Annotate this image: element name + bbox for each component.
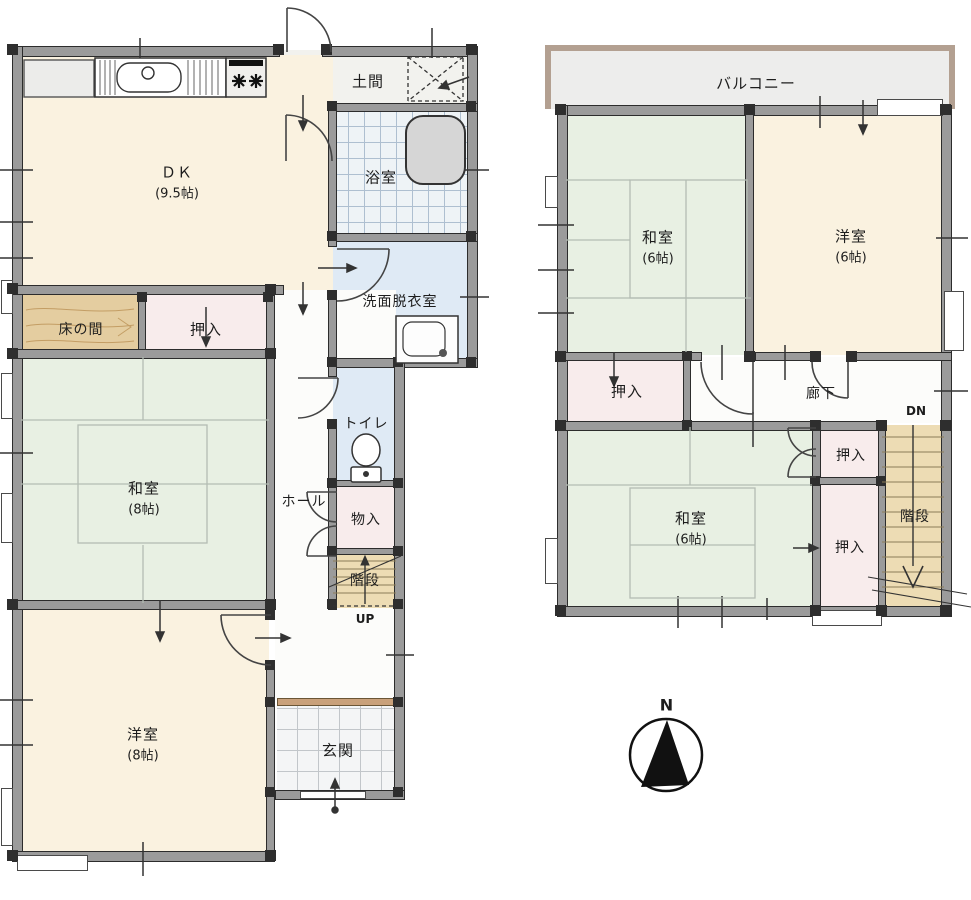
wall <box>328 103 478 112</box>
label-yoshitsu-6: 洋室 (6帖) <box>835 227 867 266</box>
window <box>545 176 558 208</box>
label-oshiire-1f: 押入 <box>190 320 222 340</box>
window <box>1 280 13 314</box>
wall <box>755 352 812 361</box>
floor-plan: 土間 浴室 洗面脱衣室 ＤＫ (9.5帖) 床の間 押入 和室 (8帖) トイレ… <box>0 0 971 900</box>
window <box>1 788 13 846</box>
wall <box>814 477 880 485</box>
wall <box>333 548 396 555</box>
label-genkan: 玄関 <box>322 741 354 761</box>
label-senmen: 洗面脱衣室 <box>363 293 438 311</box>
wall <box>328 420 337 610</box>
wall <box>322 46 478 57</box>
label-dn: DN <box>906 404 926 420</box>
wall <box>394 358 405 800</box>
wall <box>328 103 337 247</box>
window <box>1 373 13 419</box>
window <box>1 493 13 543</box>
wall <box>557 421 882 431</box>
wall <box>12 600 275 610</box>
label-up: UP <box>356 612 375 628</box>
label-tokonoma: 床の間 <box>59 321 104 339</box>
label-washitsu-6n: 和室 (6帖) <box>642 228 674 267</box>
wall <box>12 349 275 359</box>
label-washitsu-8: 和室 (8帖) <box>128 479 160 518</box>
wall <box>557 105 568 617</box>
wall <box>557 606 952 617</box>
wall <box>12 46 23 862</box>
wall <box>12 285 284 295</box>
label-yoshitsu-8: 洋室 (8帖) <box>127 725 159 764</box>
window <box>944 291 964 351</box>
label-north: N <box>660 696 674 717</box>
label-oshiire-e1: 押入 <box>836 447 866 465</box>
window <box>812 610 882 626</box>
wall <box>328 233 478 242</box>
wall <box>467 46 478 368</box>
compass-icon <box>630 719 702 791</box>
wall <box>878 421 886 615</box>
wall <box>266 665 275 862</box>
window <box>17 855 88 871</box>
wall <box>557 352 702 361</box>
window <box>545 538 558 584</box>
label-toilet: トイレ <box>344 415 389 433</box>
wall <box>848 352 952 361</box>
wall <box>333 480 396 487</box>
label-bath: 浴室 <box>365 168 397 188</box>
window <box>877 99 943 116</box>
front-door <box>300 791 366 799</box>
wall <box>745 105 754 361</box>
label-washitsu-6s: 和室 (6帖) <box>675 509 707 548</box>
label-kaidan-2f: 階段 <box>900 508 930 526</box>
wall <box>683 352 691 430</box>
wall <box>941 105 952 617</box>
label-balcony: バルコニー <box>716 74 796 94</box>
label-kaidan-1f: 階段 <box>350 572 380 590</box>
room-bath <box>333 110 472 238</box>
genkan-step <box>277 698 397 706</box>
wall <box>266 295 275 617</box>
wall <box>138 295 146 355</box>
wall <box>812 421 821 615</box>
wall <box>12 46 280 57</box>
label-oshiire-nw: 押入 <box>611 382 643 402</box>
label-hall: ホール <box>282 493 327 511</box>
label-oshiire-e2: 押入 <box>835 539 865 557</box>
label-rouka: 廊下 <box>806 385 836 403</box>
label-monoire: 物入 <box>351 511 381 529</box>
label-doma: 土間 <box>352 72 384 92</box>
wall <box>328 293 337 377</box>
label-dk: ＤＫ (9.5帖) <box>155 163 199 202</box>
